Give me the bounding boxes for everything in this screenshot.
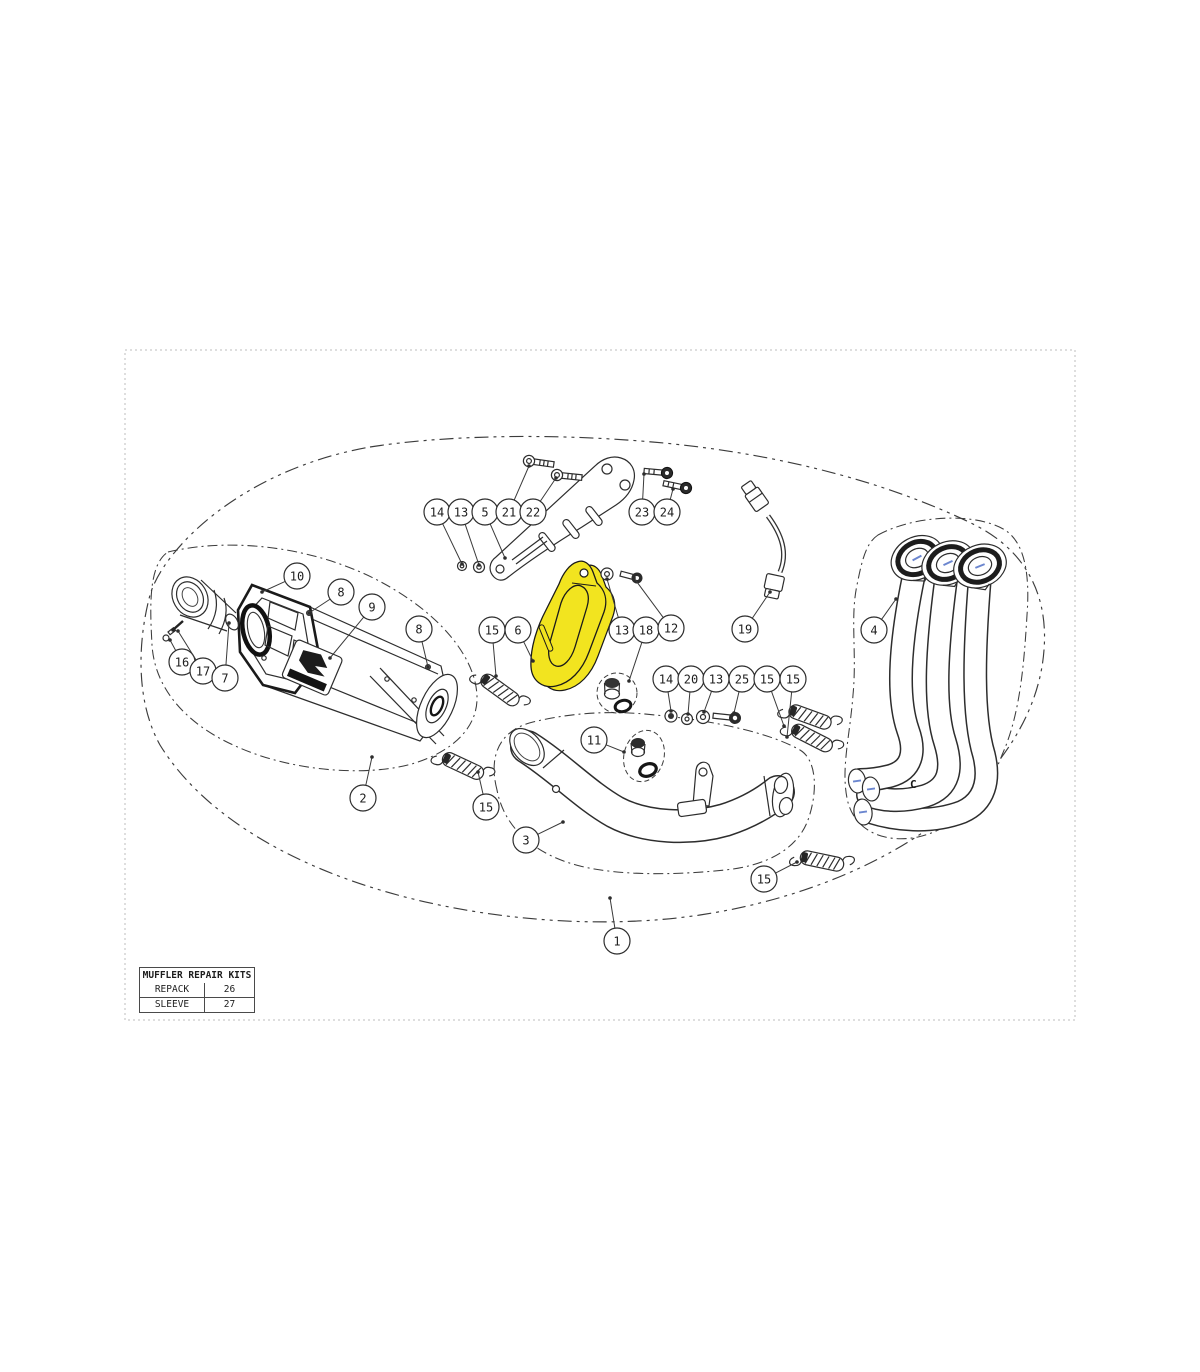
svg-text:16: 16 [175,656,189,670]
svg-text:3: 3 [522,834,529,848]
svg-text:1: 1 [613,935,620,949]
collector-clamp-mark: C [910,778,917,791]
svg-text:8: 8 [337,586,344,600]
kit-name: SLEEVE [140,998,205,1012]
svg-text:7: 7 [221,672,228,686]
callout-6: 6 [505,617,535,663]
svg-text:13: 13 [615,624,629,638]
callout-10: 10 [260,563,310,594]
svg-text:11: 11 [587,734,601,748]
frame-bolt-23 [644,465,673,479]
callout-1: 1 [604,896,630,954]
svg-text:4: 4 [870,624,877,638]
svg-text:12: 12 [664,622,678,636]
repair-kit-row: SLEEVE27 [140,997,254,1012]
svg-text:2: 2 [359,792,366,806]
callout-8: 8 [307,579,354,615]
spring-eyelet [553,786,560,793]
tip-screw [163,621,183,641]
svg-text:15: 15 [760,673,774,687]
svg-text:15: 15 [485,624,499,638]
spring [789,844,855,877]
callout-15: 15 [751,860,799,892]
svg-text:18: 18 [639,624,653,638]
repair-kits-title: MUFFLER REPAIR KITS [140,968,254,983]
callout-24: 24 [654,487,680,525]
svg-text:15: 15 [786,673,800,687]
callout-3: 3 [513,820,565,853]
bracket-bolt-21 [523,455,555,470]
svg-text:19: 19 [738,623,752,637]
svg-text:15: 15 [479,801,493,815]
callout-19: 19 [732,590,772,642]
callout-2: 2 [350,755,376,811]
header-pipes: C [847,527,1014,826]
svg-text:10: 10 [290,570,304,584]
muffler-assembly [163,570,466,744]
callout-11: 11 [581,727,626,754]
svg-text:5: 5 [481,506,488,520]
sensor-cable [739,479,784,599]
kit-ref-number: 26 [205,983,254,997]
clamp-nut-group [597,673,637,713]
callout-15: 15 [479,617,505,678]
svg-text:25: 25 [735,673,749,687]
svg-text:21: 21 [502,506,516,520]
svg-text:22: 22 [526,506,540,520]
spring [468,663,531,717]
svg-text:13: 13 [709,673,723,687]
repair-kit-row: REPACK26 [140,983,254,997]
kit-ref-number: 27 [205,998,254,1012]
repair-kits-table: MUFFLER REPAIR KITS REPACK26SLEEVE27 [139,967,255,1013]
spring [430,743,496,789]
svg-text:23: 23 [635,506,649,520]
svg-text:14: 14 [430,506,444,520]
callout-13: 13 [702,666,729,714]
svg-text:20: 20 [684,673,698,687]
svg-text:17: 17 [196,665,210,679]
sensor-bolt-group [618,726,670,787]
parts-diagram-page: C [0,0,1200,1372]
highlighted-bracket [531,561,615,691]
kit-name: REPACK [140,983,205,997]
svg-text:9: 9 [368,601,375,615]
svg-text:14: 14 [659,673,673,687]
link-pipe [503,722,797,826]
svg-text:6: 6 [514,624,521,638]
bracket-bolt-22 [551,469,583,483]
callout-25: 25 [729,666,755,715]
svg-text:8: 8 [415,623,422,637]
svg-text:15: 15 [757,873,771,887]
svg-text:24: 24 [660,506,674,520]
callout-14: 14 [653,666,679,713]
frame-bolt-24 [662,478,692,495]
callout-20: 20 [678,666,704,716]
svg-text:13: 13 [454,506,468,520]
exploded-diagram: C [0,0,1200,1372]
callout-7: 7 [212,621,238,691]
